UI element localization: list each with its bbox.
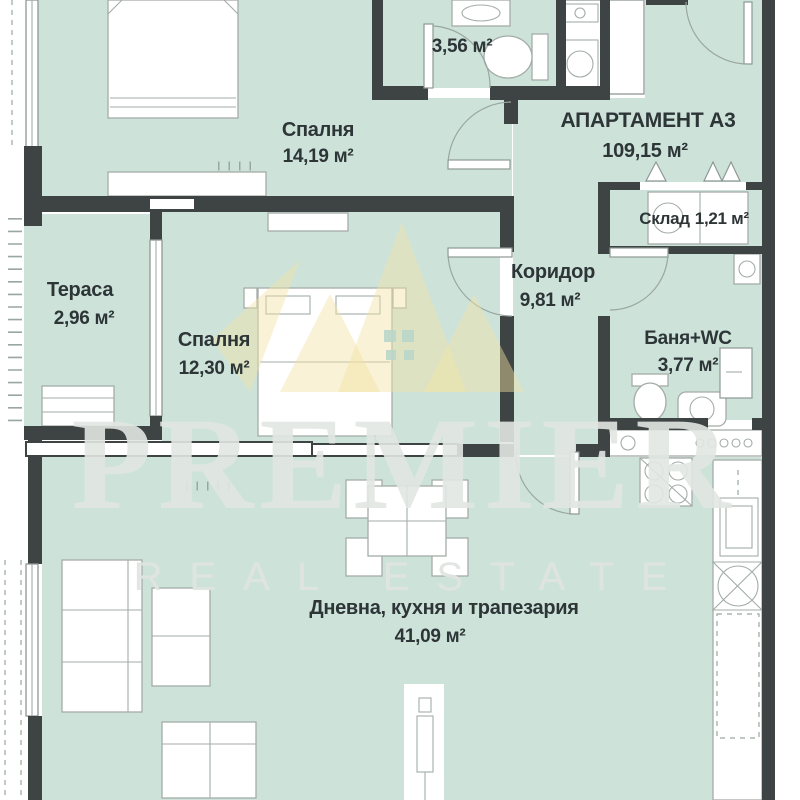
floor-plan-page: PREMIER REAL ESTATE 3,56 м² Спалня 14,19… [0, 0, 800, 800]
wall [556, 0, 566, 96]
tv-column-band [404, 684, 444, 800]
wall [762, 0, 775, 800]
label-bathroom-top-area: 3,56 м² [432, 36, 493, 57]
wall [28, 716, 42, 800]
wall [372, 86, 428, 100]
label-bedroom2-name: Спалня [178, 329, 250, 351]
wall [610, 182, 640, 190]
wall [490, 86, 610, 100]
wall [752, 418, 762, 430]
wall [24, 196, 514, 212]
window-living-balcony [26, 564, 38, 716]
label-bedroom2-area: 12,30 м² [179, 358, 250, 379]
label-bedroom1-name: Спалня [282, 119, 354, 141]
bed-double-bedroom1 [108, 0, 238, 118]
wall [500, 212, 514, 252]
wall [372, 0, 383, 94]
watermark-brand-text: PREMIER [71, 390, 736, 537]
label-storage: Склад1,21 м² [639, 209, 749, 228]
label-bathroom-wc-area: 3,77 м² [658, 355, 719, 376]
label-corridor-area: 9,81 м² [520, 290, 581, 311]
wall [24, 146, 42, 226]
label-corridor-name: Коридор [511, 261, 595, 283]
label-bathroom-wc-name: Баня+WC [644, 328, 732, 349]
wall [504, 100, 518, 124]
window-bedroom1 [26, 0, 38, 148]
label-living-area: 41,09 м² [395, 626, 466, 647]
wall [598, 182, 610, 254]
label-apartment-area: 109,15 м² [602, 140, 688, 162]
label-terrace-area: 2,96 м² [54, 308, 115, 329]
washing-machine-bathroom-wc [734, 254, 760, 284]
label-bedroom1-area: 14,19 м² [283, 146, 354, 167]
wall [646, 0, 688, 5]
wall-insert [150, 199, 194, 209]
wall [150, 212, 162, 240]
label-apartment-title: АПАРТАМЕНТ А3 [560, 109, 735, 132]
watermark-tagline-text: REAL ESTATE [134, 555, 695, 599]
label-terrace-name: Тераса [47, 279, 115, 301]
duct-box [606, 0, 644, 94]
toilet-bathroom-top [484, 34, 548, 80]
wall [600, 0, 610, 96]
dresser-bedroom1 [108, 172, 266, 196]
wall [28, 440, 42, 564]
label-living-name: Дневна, кухня и трапезария [309, 597, 578, 619]
floor-plan-drawing: PREMIER REAL ESTATE 3,56 м² Спалня 14,19… [0, 0, 800, 800]
site-details [5, 0, 21, 800]
dresser-bedroom2 [268, 213, 348, 231]
wall [746, 182, 762, 190]
sink-bathroom-top [452, 0, 510, 26]
room-bedroom1-floor-ext [372, 98, 512, 198]
